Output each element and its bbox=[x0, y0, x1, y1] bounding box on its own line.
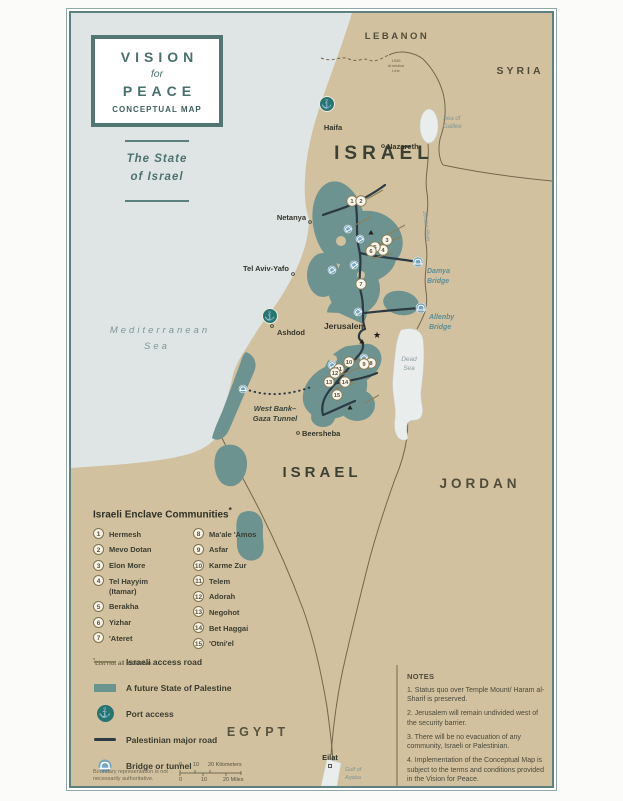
enclave-number-badge: 12 bbox=[193, 591, 204, 602]
label-jordan-river: Jordan River bbox=[421, 210, 431, 244]
enclave-number-badge: 2 bbox=[93, 544, 104, 555]
enclave-marker-12: 12 bbox=[330, 368, 340, 378]
enclave-name: Mevo Dotan bbox=[109, 544, 152, 556]
enclave-number-badge: 15 bbox=[193, 638, 204, 649]
enclave-number-badge: 4 bbox=[93, 575, 104, 586]
label-gulf-aqaba-1: Gulf of bbox=[345, 767, 362, 773]
enclave-number-badge: 6 bbox=[93, 617, 104, 628]
enclave-number-badge: 1 bbox=[93, 528, 104, 539]
svg-text:12: 12 bbox=[332, 371, 338, 377]
enclave-communities-panel: Israeli Enclave Communities* 1Hermesh2Me… bbox=[93, 505, 311, 667]
enclave-list-item-9: 9Asfar bbox=[193, 544, 311, 556]
label-galilee-2: Galilee bbox=[443, 124, 462, 130]
enclave-name: Berakha bbox=[109, 601, 139, 613]
enclave-list-item-8: 8Ma'ale 'Amos bbox=[193, 528, 311, 540]
svg-text:⚓: ⚓ bbox=[321, 98, 332, 109]
enclave-marker-7: 7 bbox=[356, 279, 366, 289]
gulf-of-aqaba-shape bbox=[321, 759, 341, 786]
label-damya-2: Bridge bbox=[427, 278, 449, 285]
svg-text:Ashdod: Ashdod bbox=[277, 328, 305, 337]
enclave-marker-3: 3 bbox=[382, 235, 392, 245]
legend-item-palestine: A future State of Palestine bbox=[93, 679, 283, 696]
title-conceptual-map: CONCEPTUAL MAP bbox=[99, 105, 215, 114]
label-mediterranean-1: Mediterranean bbox=[110, 325, 210, 336]
anchor-icon: ⚓ bbox=[97, 705, 114, 722]
major-road-icon bbox=[94, 738, 116, 741]
legend-item-major-road: Palestinian major road bbox=[93, 731, 283, 748]
label-dead-sea-2: Sea bbox=[403, 365, 415, 372]
enclave-name: Elon More bbox=[109, 560, 145, 572]
subtitle-line-1: The State bbox=[91, 151, 223, 169]
enclave-number-badge: 10 bbox=[193, 560, 204, 571]
svg-text:⚓: ⚓ bbox=[264, 310, 275, 321]
dead-sea-shape bbox=[393, 329, 424, 440]
notes-title: NOTES bbox=[407, 672, 547, 681]
sea-of-galilee-shape bbox=[420, 109, 438, 143]
note-2: 2. Jerusalem will remain undivided west … bbox=[407, 709, 547, 727]
scale-km-10: 10 bbox=[193, 762, 199, 768]
legend-item-access-road: Israeli access road bbox=[93, 653, 283, 670]
map-canvas: LEBANON SYRIA ISRAEL ISRAEL JORDAN EGYPT… bbox=[69, 11, 554, 788]
label-allenby-2: Bridge bbox=[429, 324, 451, 331]
enclave-marker-2: 2 bbox=[356, 196, 366, 206]
svg-text:Eilat: Eilat bbox=[322, 753, 338, 762]
enclave-marker-14: 14 bbox=[340, 377, 350, 387]
label-allenby-1: Allenby bbox=[428, 314, 455, 321]
enclave-number-badge: 13 bbox=[193, 606, 204, 617]
enclave-marker-6: 6 bbox=[366, 246, 376, 256]
note-4: 4. Implementation of the Conceptual Map … bbox=[407, 756, 547, 784]
city-beersheba: Beersheba bbox=[297, 429, 342, 438]
enclave-list-item-5: 5Berakha bbox=[93, 601, 193, 613]
label-tunnel-1: West Bank– bbox=[254, 404, 296, 413]
enclave-number-badge: 14 bbox=[193, 622, 204, 633]
enclave-name: 'Ateret bbox=[109, 632, 132, 644]
divider bbox=[125, 140, 189, 142]
note-3: 3. There will be no evacuation of any co… bbox=[407, 733, 547, 751]
svg-text:2: 2 bbox=[359, 199, 362, 205]
enclave-name: Yizhar bbox=[109, 617, 131, 629]
bridge-icon bbox=[413, 257, 423, 267]
palestine-swatch-icon bbox=[94, 684, 116, 692]
label-damya-1: Damya bbox=[427, 268, 450, 275]
title-block: VISION for PEACE CONCEPTUAL MAP The Stat… bbox=[91, 35, 223, 202]
title-peace: PEACE bbox=[99, 83, 215, 99]
boundary-disclaimer: Boundary representation is not necessari… bbox=[93, 769, 175, 784]
divider bbox=[125, 200, 189, 202]
title-for: for bbox=[99, 68, 215, 80]
enclave-name: Telem bbox=[209, 575, 230, 587]
enclave-list-item-11: 11Telem bbox=[193, 575, 311, 587]
svg-text:13: 13 bbox=[326, 380, 333, 386]
label-gulf-aqaba-2: Aqaba bbox=[344, 775, 361, 781]
enclave-number-badge: 3 bbox=[93, 560, 104, 571]
enclave-list-item-15: 15'Otni'el bbox=[193, 638, 311, 650]
enclave-number-badge: 7 bbox=[93, 632, 104, 643]
enclave-marker-9: 9 bbox=[359, 359, 369, 369]
enclave-number-badge: 11 bbox=[193, 575, 204, 586]
label-israel-south: ISRAEL bbox=[282, 464, 361, 481]
enclave-name: Tel Hayyim(Itamar) bbox=[109, 575, 148, 597]
svg-text:Jerusalem: Jerusalem bbox=[324, 321, 366, 331]
enclave-name: Negohot bbox=[209, 606, 239, 618]
enclave-number-badge: 5 bbox=[93, 601, 104, 612]
city-haifa: Haifa bbox=[324, 123, 343, 132]
svg-text:Haifa: Haifa bbox=[324, 123, 343, 132]
enclave-marker-13: 13 bbox=[324, 377, 334, 387]
page: LEBANON SYRIA ISRAEL ISRAEL JORDAN EGYPT… bbox=[0, 0, 623, 801]
svg-text:Netanya: Netanya bbox=[277, 213, 307, 222]
scale-bar: 0 10 20 Kilometers 0 10 20 Miles bbox=[179, 762, 269, 784]
enclave-name: Asfar bbox=[209, 544, 228, 556]
svg-text:14: 14 bbox=[342, 380, 349, 386]
scale-mi-20: 20 Miles bbox=[223, 777, 243, 783]
map-frame: LEBANON SYRIA ISRAEL ISRAEL JORDAN EGYPT… bbox=[66, 8, 557, 791]
port-anchor-icon: ⚓ bbox=[320, 97, 335, 112]
svg-text:Nazareth: Nazareth bbox=[387, 142, 419, 151]
enclave-number-badge: 8 bbox=[193, 528, 204, 539]
enclave-list-item-6: 6Yizhar bbox=[93, 617, 193, 629]
enclave-list-item-4: 4Tel Hayyim(Itamar) bbox=[93, 575, 193, 597]
gaza-tunnel-line bbox=[245, 387, 311, 394]
subtitle-line-2: of Israel bbox=[91, 169, 223, 187]
scale-mi-0: 0 bbox=[179, 777, 182, 783]
enclave-list-item-7: 7'Ateret bbox=[93, 632, 193, 644]
notes-panel: NOTES 1. Status quo over Temple Mount/ H… bbox=[407, 672, 547, 788]
enclave-name: 'Otni'el bbox=[209, 638, 234, 650]
label-galilee-1: Sea of bbox=[443, 116, 462, 122]
enclave-list-item-3: 3Elon More bbox=[93, 560, 193, 572]
svg-text:10: 10 bbox=[346, 360, 352, 366]
title-vision: VISION bbox=[99, 49, 215, 65]
port-anchor-icon: ⚓ bbox=[263, 309, 278, 324]
enclave-name: Bet Haggai bbox=[209, 622, 248, 634]
enclave-name: Hermesh bbox=[109, 528, 141, 540]
label-dead-sea-1: Dead bbox=[401, 356, 417, 363]
jerusalem-star-icon: ★ bbox=[373, 330, 381, 340]
label-jordan: JORDAN bbox=[439, 476, 520, 491]
scale-mi-10: 10 bbox=[201, 777, 207, 783]
enclave-title: Israeli Enclave Communities* bbox=[93, 505, 311, 520]
label-tunnel-2: Gaza Tunnel bbox=[253, 414, 298, 423]
label-lebanon: LEBANON bbox=[365, 31, 429, 42]
enclave-name: Karme Zur bbox=[209, 560, 247, 572]
enclave-list-item-13: 13Negohot bbox=[193, 606, 311, 618]
title-box: VISION for PEACE CONCEPTUAL MAP bbox=[91, 35, 223, 127]
svg-text:Beersheba: Beersheba bbox=[302, 429, 341, 438]
scale-km-20: 20 Kilometers bbox=[208, 762, 242, 768]
bridge-icon bbox=[239, 385, 247, 393]
svg-text:15: 15 bbox=[334, 393, 341, 399]
scale-ticks bbox=[179, 769, 249, 777]
access-road-icon bbox=[94, 661, 116, 663]
note-1: 1. Status quo over Temple Mount/ Haram a… bbox=[407, 686, 547, 704]
scale-km-0: 0 bbox=[179, 762, 182, 768]
legend-item-port: ⚓ Port access bbox=[93, 705, 283, 722]
label-syria: SYRIA bbox=[496, 65, 543, 77]
svg-text:Tel Aviv-Yafo: Tel Aviv-Yafo bbox=[243, 264, 289, 273]
label-armistice-3: Line bbox=[392, 68, 400, 73]
bridge-icon bbox=[416, 303, 426, 313]
enclave-number-badge: 9 bbox=[193, 544, 204, 555]
enclave-name: Adorah bbox=[209, 591, 235, 603]
enclave-list-item-1: 1Hermesh bbox=[93, 528, 193, 540]
enclave-list-item-10: 10Karme Zur bbox=[193, 560, 311, 572]
enclave-list-item-14: 14Bet Haggai bbox=[193, 622, 311, 634]
city-nazareth: Nazareth bbox=[382, 142, 419, 151]
enclave-list-item-2: 2Mevo Dotan bbox=[93, 544, 193, 556]
svg-text:7: 7 bbox=[359, 282, 362, 288]
enclave-marker-10: 10 bbox=[344, 357, 354, 367]
enclave-marker-15: 15 bbox=[332, 390, 342, 400]
enclave-list-item-12: 12Adorah bbox=[193, 591, 311, 603]
enclave-name: Ma'ale 'Amos bbox=[209, 528, 256, 540]
label-mediterranean-2: Sea bbox=[144, 341, 170, 352]
